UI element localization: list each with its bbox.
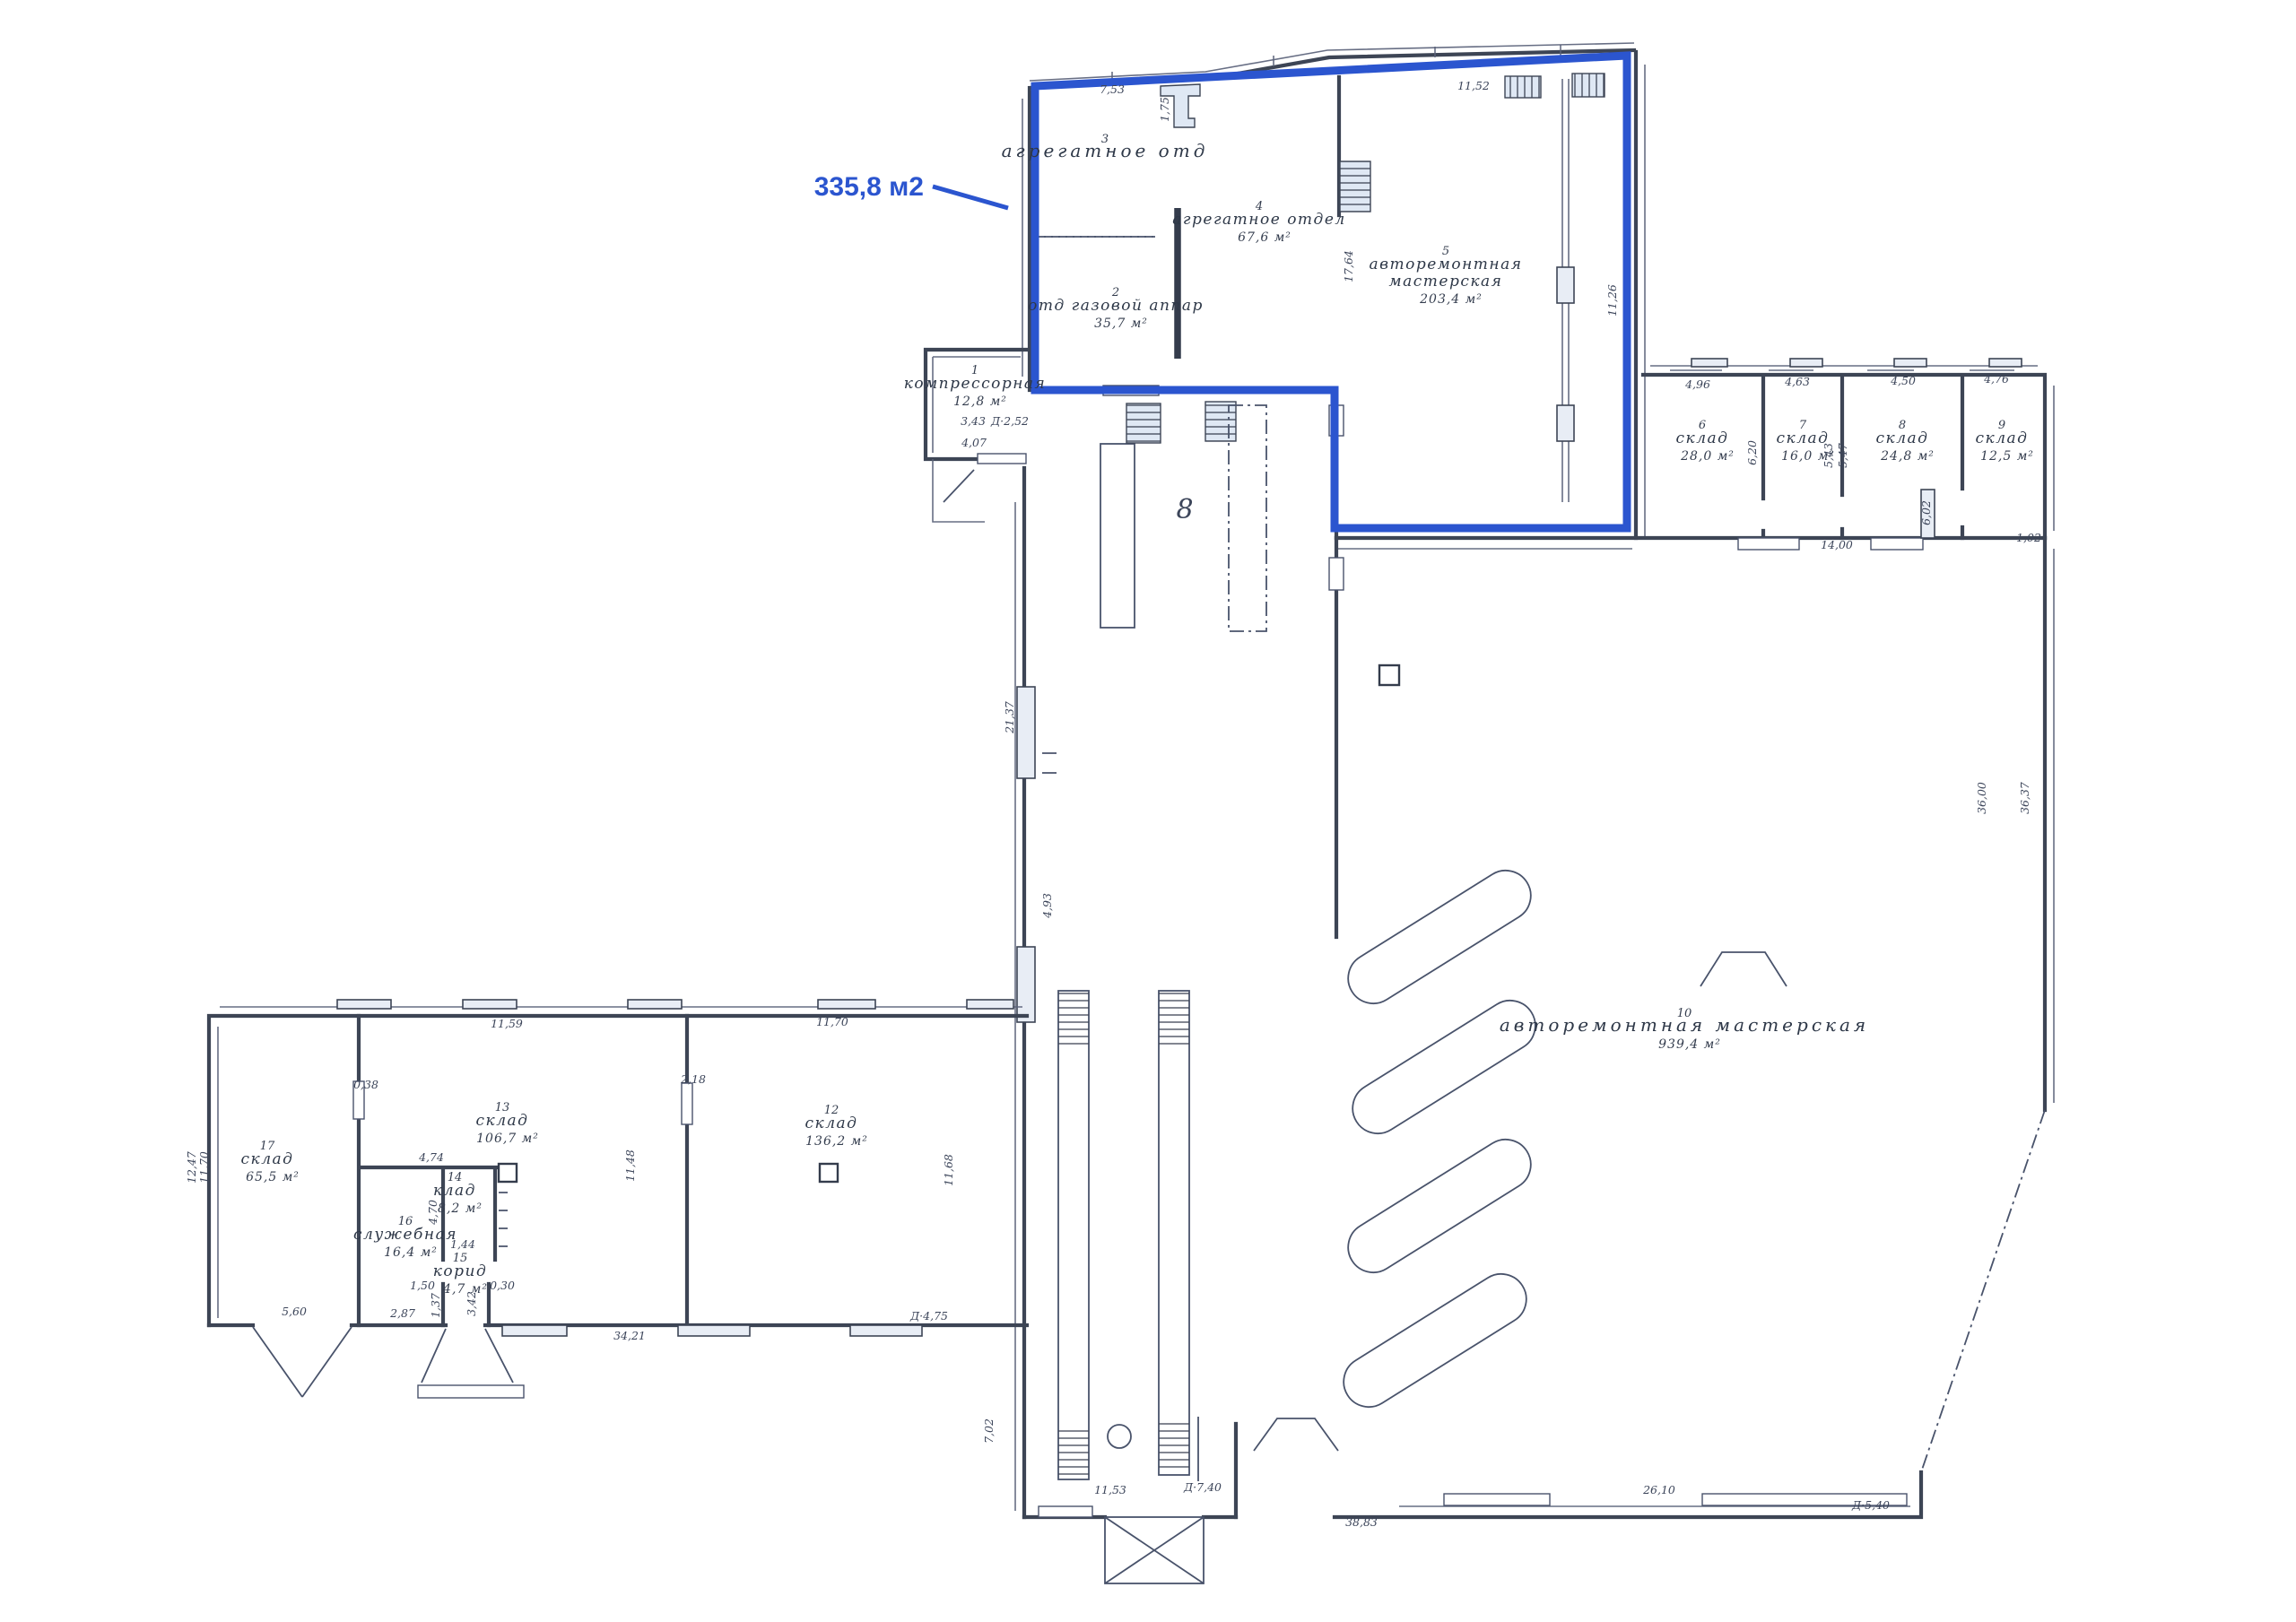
dimension-label: 0,30 bbox=[490, 1279, 515, 1292]
dimension-label: 5,43 bbox=[1822, 443, 1835, 468]
room-name: склад bbox=[1676, 429, 1729, 447]
dimension-label: 4,07 bbox=[961, 436, 987, 449]
dimension-label: 1,37 bbox=[429, 1293, 442, 1318]
room-name: агрегатное отдел bbox=[1172, 211, 1345, 229]
room-name: склад bbox=[1976, 429, 2029, 447]
room-name: авторемонтная мастерская bbox=[1500, 1014, 1869, 1036]
dimension-label: 11,70 bbox=[197, 1151, 211, 1184]
highlight-leader-line bbox=[933, 186, 1008, 208]
room-name: склад bbox=[476, 1112, 529, 1130]
dimension-label: 4,96 bbox=[1684, 377, 1710, 391]
dimension-label: 0,38 bbox=[353, 1078, 378, 1091]
dimension-label: 4,63 bbox=[1784, 375, 1810, 388]
dimension-label: 7,53 bbox=[1100, 82, 1125, 96]
dimension-label: 11,52 bbox=[1457, 79, 1490, 92]
dimension-label: 4,50 bbox=[1890, 374, 1916, 387]
dimension-label: 4,70 bbox=[426, 1200, 439, 1226]
dimension-label: 4,74 bbox=[418, 1150, 444, 1164]
dimension-label: 1,75 bbox=[1158, 97, 1171, 122]
dimension-label: 12,47 bbox=[185, 1151, 198, 1184]
dimension-label: 11,70 bbox=[816, 1015, 848, 1028]
dimension-label: 6,02 bbox=[1919, 500, 1933, 525]
room-name: агрегатное отд bbox=[1002, 140, 1209, 161]
highlight-outline[interactable] bbox=[1035, 56, 1627, 528]
room-name: склад bbox=[1876, 429, 1929, 447]
room-area: 67,6 м² bbox=[1238, 230, 1291, 245]
dimension-label: Д·2,52 bbox=[990, 414, 1029, 428]
dimension-label: 34,21 bbox=[613, 1329, 646, 1342]
building-outline-layer bbox=[209, 43, 2054, 1583]
room-area: 203,4 м² bbox=[1419, 292, 1483, 307]
dimension-label: 36,37 bbox=[2018, 782, 2031, 814]
axis-marker-8: 8 bbox=[1176, 494, 1193, 525]
room-name-line2: мастерская bbox=[1389, 273, 1503, 291]
dimension-label: 7,02 bbox=[982, 1418, 996, 1444]
room-area: 136,2 м² bbox=[805, 1134, 868, 1149]
dimension-label: 5,60 bbox=[282, 1305, 307, 1318]
dimension-label: 1,44 bbox=[450, 1237, 475, 1251]
dimension-label: 11,53 bbox=[1094, 1483, 1126, 1496]
dimension-label: 3,43 bbox=[961, 414, 986, 428]
dimension-label: 6,20 bbox=[1745, 440, 1759, 465]
floor-plan: 335,8 м2 1компрессорная12,8 м²2отд газов… bbox=[0, 0, 2296, 1622]
dimension-label: 26,10 bbox=[1642, 1483, 1675, 1496]
room-area: 28,0 м² bbox=[1680, 449, 1735, 464]
dimension-label: 17,64 bbox=[1342, 250, 1355, 282]
room-labels-layer: 1компрессорная12,8 м²2отд газовой аппар3… bbox=[241, 133, 2034, 1297]
room-area: 35,7 м² bbox=[1094, 317, 1148, 331]
room-area: 12,5 м² bbox=[1980, 449, 2034, 464]
room-name: авторемонтная bbox=[1369, 256, 1522, 273]
dimension-label: 4,93 bbox=[1040, 893, 1054, 919]
dimension-label: 11,68 bbox=[942, 1154, 955, 1186]
room-area: 12,8 м² bbox=[953, 395, 1007, 409]
room-area: 8,2 м² bbox=[438, 1201, 483, 1216]
room-area: 939,4 м² bbox=[1658, 1037, 1721, 1052]
dimension-label: 1,50 bbox=[410, 1279, 435, 1292]
room-name: склад bbox=[241, 1150, 294, 1168]
room-name: отд газовой аппар bbox=[1028, 297, 1204, 315]
room-name: компрессорная bbox=[904, 375, 1047, 393]
dimension-label: 11,48 bbox=[623, 1149, 637, 1182]
room-name: корид bbox=[433, 1262, 488, 1280]
dimension-label: Д·4,75 bbox=[909, 1309, 948, 1323]
dimension-label: 14,00 bbox=[1821, 538, 1853, 551]
dimension-label: 36,00 bbox=[1975, 782, 1988, 814]
dimension-label: 5,47 bbox=[1836, 443, 1849, 468]
dimension-label: Д·5,40 bbox=[1851, 1498, 1890, 1512]
room-area: 65,5 м² bbox=[246, 1170, 300, 1184]
dimension-label: 1,02 bbox=[2016, 531, 2041, 544]
dimension-label: 2,87 bbox=[389, 1306, 415, 1320]
dimension-label: 11,59 bbox=[491, 1017, 523, 1030]
room-name: клад bbox=[433, 1182, 476, 1200]
dimension-label: 3,42 bbox=[465, 1291, 478, 1316]
dimension-label: 21,37 bbox=[1003, 701, 1016, 734]
dimension-label: 2,18 bbox=[680, 1072, 706, 1086]
dimension-label: 38,83 bbox=[1345, 1515, 1378, 1529]
room-name: склад bbox=[805, 1115, 858, 1132]
room-name: служебная bbox=[353, 1226, 457, 1244]
dimension-label: Д·7,40 bbox=[1183, 1480, 1222, 1494]
highlight-area-label: 335,8 м2 bbox=[814, 172, 924, 202]
room-area: 106,7 м² bbox=[476, 1132, 539, 1146]
dimension-label: 4,76 bbox=[1983, 372, 2009, 386]
room-area: 16,4 м² bbox=[384, 1245, 438, 1260]
room-area: 24,8 м² bbox=[1880, 449, 1935, 464]
dimension-label: 11,26 bbox=[1605, 284, 1619, 317]
